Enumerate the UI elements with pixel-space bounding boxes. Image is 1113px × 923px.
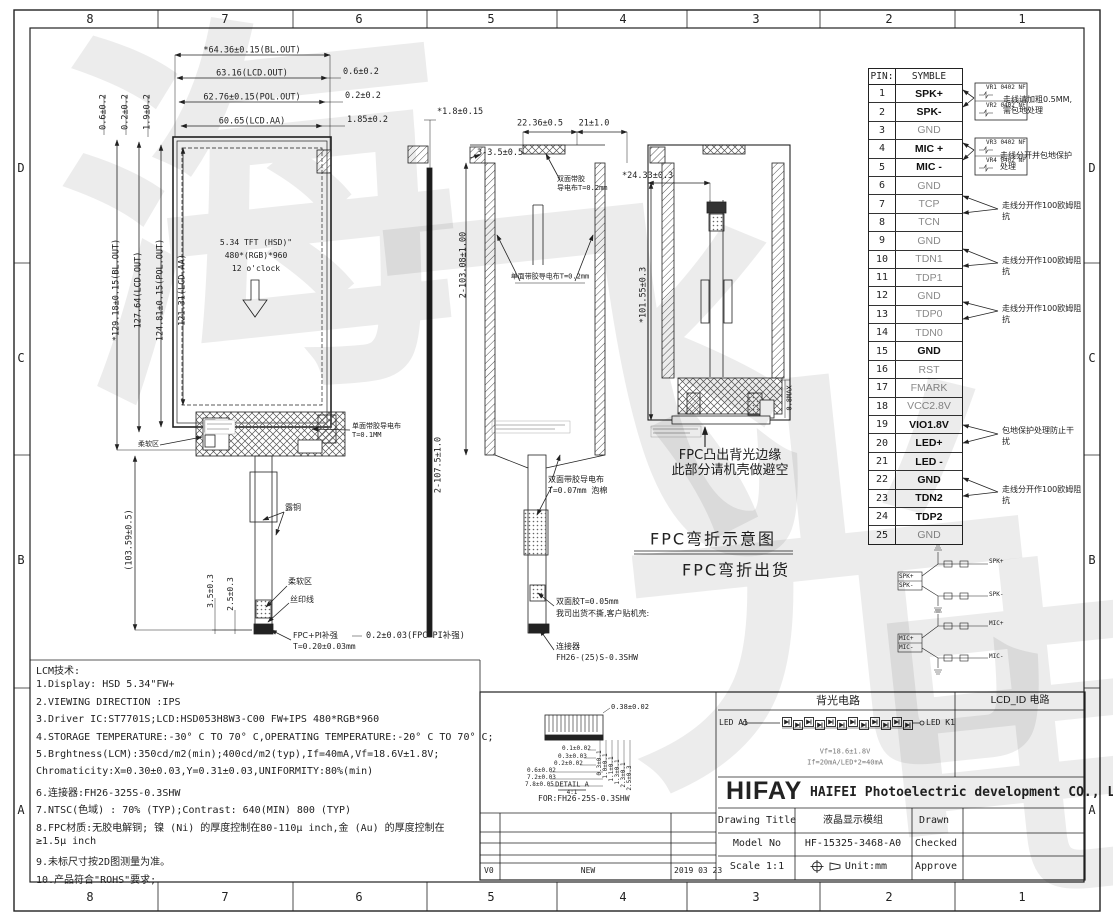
fpc-bend-title: FPC弯折示意图 (650, 532, 776, 549)
engineering-drawing-page: 海 飞 光 电 8877665544332211DDCCBBAA *64.36±… (0, 0, 1113, 923)
pin-symbol: TDN0 (896, 327, 962, 339)
soft-zone-label: 柔软区 (288, 578, 312, 586)
pin-table: PIN: SYMBLE 1SPK+2SPK-3GND4MIC +5MIC -6G… (868, 68, 963, 545)
backlight-if: If=20mA/LED*2=40mA (807, 759, 883, 766)
grid-col-bottom: 5 (487, 890, 494, 904)
pin-symbol: MIC - (896, 161, 962, 173)
silkscreen-label: 丝印线 (290, 596, 314, 604)
detail-rdim-6: 2.5±0.3 (627, 765, 633, 790)
led-ground-note1: 包地保护处理防止干 (1002, 427, 1074, 435)
tape-top-label2: 导电布T=0.2mm (557, 185, 608, 192)
dim-section-h1: 2-103.08±1.00 (460, 232, 469, 299)
grid-row-left: C (17, 351, 24, 365)
pin-number: 22 (869, 471, 896, 488)
pin-row: 24TDP2 (869, 508, 962, 526)
dim-lcd-out-h: 127.64(LCD.OUT) (135, 252, 144, 329)
fpc-bend-subtitle: FPC弯折出货 (682, 563, 790, 580)
dim-rear-w: *24.33±0.3 (622, 172, 673, 181)
pin-symbol: TDN2 (896, 492, 962, 504)
impedance-note4b: 抗 (1002, 497, 1010, 505)
pin-symbol: LED - (896, 456, 962, 468)
dim-bl-out-w: *64.36±0.15(BL.OUT) (203, 47, 300, 56)
pin-row: 12GND (869, 287, 962, 305)
connector-label1: 连接器 (556, 643, 580, 651)
note-line: ≥1.5μ inch (36, 836, 480, 853)
note-line: 6.连接器:FH26-325S-0.3SHW (36, 784, 480, 801)
model-no-label: Model No (733, 839, 781, 850)
company-logo: HIFAY (726, 778, 802, 804)
detail-dim-1: 0.1±0.02 (562, 746, 591, 752)
dim-right-3: 1.85±0.2 (347, 116, 388, 125)
detail-for-text: FOR:FH26-25S-0.3SHW (538, 795, 630, 803)
lcd-id-circuit-title: LCD_ID 电路 (990, 696, 1049, 707)
tape-mid-label: 单面带胶导电布T=0.2mm (511, 273, 590, 280)
pin-number: 4 (869, 140, 896, 157)
detail-dim-6: 7.8±0.05 (525, 782, 554, 788)
pin-symbol: TDN1 (896, 253, 962, 265)
grid-col-top: 4 (619, 12, 626, 26)
note-line: 4.STORAGE TEMPERATURE:-30° C TO 70° C,OP… (36, 732, 480, 749)
stiffener-label: FPC+PI补强 (293, 632, 338, 640)
detail-name: DETAIL A (555, 781, 589, 788)
pin-number: 15 (869, 342, 896, 359)
note-line: 9.未标尺寸按2D图测量为准。 (36, 853, 480, 870)
drawing-title-value: 液晶显示模组 (823, 816, 883, 827)
pin-number: 5 (869, 159, 896, 176)
pin-number: 6 (869, 177, 896, 194)
impedance-note1b: 抗 (1002, 213, 1010, 221)
pin-row: 19VIO1.8V (869, 416, 962, 434)
pin-table-header: PIN: SYMBLE (869, 69, 962, 85)
grid-col-bottom: 4 (619, 890, 626, 904)
note-line: 5.Brghtness(LCM):350cd/m2(min);400cd/m2(… (36, 749, 480, 766)
note-line: 1.Display: HSD 5.34"FW+ (36, 679, 480, 696)
pin-number: 17 (869, 379, 896, 396)
pin-number: 19 (869, 416, 896, 433)
sch-mic-plus: MIC+ (899, 636, 913, 642)
pin-symbol: TDP1 (896, 272, 962, 284)
pin-number: 21 (869, 453, 896, 470)
pin-symbol: TCP (896, 198, 962, 210)
tape-top-label1: 双面带胶 (557, 176, 585, 183)
vr1-label: VR1 0402 NF (986, 85, 1026, 91)
sch-spk-plus: SPK+ (899, 574, 913, 580)
projection-symbol-icon (810, 859, 844, 878)
pin-symbol: TDP2 (896, 511, 962, 523)
grid-row-right: A (1088, 803, 1095, 817)
mic-routing-note1: 走线分开并包地保护 (1000, 152, 1072, 160)
pin-number: 16 (869, 361, 896, 378)
pin-symbol: TDP0 (896, 308, 962, 320)
note-line: 3.Driver IC:ST7701S;LCD:HSD053H8W3-C00 F… (36, 714, 480, 731)
pin-row: 25GND (869, 526, 962, 543)
grid-col-bottom: 3 (752, 890, 759, 904)
scale-label: Scale 1:1 (730, 862, 784, 873)
dim-fpc-length: (103.59±0.5) (126, 509, 135, 570)
conductive-cloth-thickness: T=0.1MM (352, 432, 382, 439)
pin-number: 18 (869, 398, 896, 415)
model-no-value: HF-15325-3468-A0 (805, 839, 901, 850)
pin-row: 6GND (869, 177, 962, 195)
led-chain (782, 716, 917, 736)
backlight-circuit-title: 背光电路 (816, 695, 860, 707)
dim-topleft-1: 0.6±0.2 (100, 94, 109, 130)
drawing-title-label: Drawing Title (718, 816, 796, 827)
impedance-note2b: 抗 (1002, 268, 1010, 276)
pin-row: 23TDN2 (869, 490, 962, 508)
note-line: 2.VIEWING DIRECTION :IPS (36, 697, 480, 714)
dim-lcd-aa-h: 121.31(LCD.AA) (179, 254, 188, 326)
grid-col-top: 5 (487, 12, 494, 26)
pin-row: 10TDN1 (869, 251, 962, 269)
dim-pol-out-w: 62.76±0.15(POL.OUT) (203, 94, 300, 103)
pin-symbol: GND (896, 529, 962, 541)
dim-lcd-out-w: 63.16(LCD.OUT) (216, 70, 288, 79)
tape-label1: 双面胶T=0.05mm (556, 598, 619, 606)
pin-row: 3GND (869, 122, 962, 140)
grid-col-top: 6 (355, 12, 362, 26)
dim-lcd-aa-w: 60.65(LCD.AA) (219, 118, 286, 127)
lcm-tech-notes: LCM技术:1.Display: HSD 5.34"FW+2.VIEWING D… (36, 662, 480, 888)
pin-symbol: RST (896, 364, 962, 376)
impedance-note1: 走线分开作100欧姆阻 (1002, 202, 1081, 210)
note-line: 7.NTSC(色域) : 70% (TYP);Contrast: 640(MIN… (36, 801, 480, 818)
pin-number: 3 (869, 122, 896, 139)
approve-label: Approve (915, 862, 957, 873)
pin-number: 7 (869, 195, 896, 212)
pin-row: 4MIC + (869, 140, 962, 158)
pin-number: 24 (869, 508, 896, 525)
sch-spk-out-minus: SPK- (989, 592, 1003, 598)
drawn-label: Drawn (919, 816, 949, 827)
pin-symbol: SPK- (896, 106, 962, 118)
sch-mic-minus: MIC- (899, 645, 913, 651)
grid-col-bottom: 7 (221, 890, 228, 904)
pin-symbol: FMARK (896, 382, 962, 394)
pin-symbol: GND (896, 290, 962, 302)
pin-symbol: GND (896, 474, 962, 486)
pin-row: 7TCP (869, 195, 962, 213)
pin-symbol: LED+ (896, 437, 962, 449)
pin-symbol: MIC + (896, 143, 962, 155)
pin-number: 20 (869, 434, 896, 451)
dim-section-h2: 2-107.5±1.0 (435, 437, 444, 493)
stiffener-thickness: T=0.20±0.03mm (293, 643, 356, 651)
detail-dim-3: 0.2±0.02 (554, 761, 583, 767)
revision-description: NEW (581, 867, 595, 875)
pin-col-header: PIN: (869, 69, 896, 84)
grid-col-top: 8 (86, 12, 93, 26)
grid-col-bottom: 8 (86, 890, 93, 904)
dim-section-top1: 22.36±0.5 (517, 120, 563, 129)
dim-right-2: 0.2±0.2 (345, 92, 381, 101)
dim-fpc-stiffener: 0.2±0.03(FPC+PI补强) (366, 632, 465, 641)
dim-tail-2: 2.5±0.3 (227, 577, 235, 611)
backlight-vf: Vf=18.6±1.8V (820, 748, 871, 755)
company-name: HAIFEI Photoelectric development CO., LT… (810, 786, 1113, 800)
led-ground-note2: 扰 (1002, 438, 1010, 446)
pin-number: 11 (869, 269, 896, 286)
dim-rear-h: *101.55±0.3 (640, 267, 649, 323)
pin-row: 8TCN (869, 214, 962, 232)
mic-routing-note2: 处理 (1000, 163, 1016, 171)
revision-date: 2019 03 23 (674, 867, 722, 875)
pin-number: 14 (869, 324, 896, 341)
pin-symbol: SPK+ (896, 88, 962, 100)
pin-row: 16RST (869, 361, 962, 379)
dim-rear-max: 0.8MAX (786, 385, 793, 410)
impedance-note3b: 抗 (1002, 316, 1010, 324)
dim-right-1: 0.6±0.2 (343, 68, 379, 77)
pin-number: 12 (869, 287, 896, 304)
pin-row: 17FMARK (869, 379, 962, 397)
pin-row: 2SPK- (869, 103, 962, 121)
pin-number: 2 (869, 103, 896, 120)
pin-row: 11TDP1 (869, 269, 962, 287)
impedance-note4: 走线分开作100欧姆阻 (1002, 486, 1081, 494)
sch-spk-minus: SPK- (899, 583, 913, 589)
fpc-clearance-note1: FPC凸出背光边缘 (679, 449, 781, 463)
grid-col-top: 3 (752, 12, 759, 26)
pin-row: 1SPK+ (869, 85, 962, 103)
screen-spec-line2: 480*(RGB)*960 (225, 252, 288, 260)
pin-number: 10 (869, 251, 896, 268)
pin-symbol: GND (896, 124, 962, 136)
pin-symbol: TCN (896, 216, 962, 228)
grid-row-left: D (17, 161, 24, 175)
pin-row: 20LED+ (869, 434, 962, 452)
pin-number: 9 (869, 232, 896, 249)
pin-number: 23 (869, 490, 896, 507)
led-anode-label: LED A1 (719, 719, 748, 727)
pin-number: 25 (869, 526, 896, 543)
grid-col-bottom: 1 (1018, 890, 1025, 904)
foam-label1: 双面带胶导电布 (548, 476, 604, 484)
pin-row: 9GND (869, 232, 962, 250)
spk-routing-note1: 走线请加粗0.5MM, (1003, 96, 1072, 104)
dim-pol-out-h: 124.81±0.15(POL.OUT) (157, 239, 166, 341)
conductive-cloth-label: 单面带胶导电布 (352, 423, 401, 430)
dim-section-top2: 21±1.0 (579, 120, 610, 129)
impedance-note2: 走线分开作100欧姆阻 (1002, 257, 1081, 265)
dim-thickness: *1.8±0.15 (437, 108, 483, 117)
led-cathode-label: LED K1 (926, 719, 955, 727)
grid-col-bottom: 2 (885, 890, 892, 904)
soft-zone-label-top: 柔软区 (138, 441, 159, 448)
pin-row: 21LED - (869, 453, 962, 471)
spk-routing-note2: 需包地处理 (1003, 107, 1043, 115)
vr3-label: VR3 0402 NF (986, 140, 1026, 146)
dim-tail-1: 3.5±0.3 (207, 574, 215, 608)
sch-mic-out-plus: MIC+ (989, 621, 1003, 627)
sch-mic-out-minus: MIC- (989, 654, 1003, 660)
note-line: 10.产品符合"ROHS"要求; (36, 871, 480, 888)
unit-value: Unit:mm (845, 862, 887, 873)
revision-version: V0 (484, 867, 494, 875)
sch-spk-out-plus: SPK+ (989, 559, 1003, 565)
pin-symbol: VIO1.8V (896, 419, 962, 431)
connector-label2: FH26-(25)S-0.3SHW (556, 654, 638, 662)
pin-symbol: VCC2.8V (896, 400, 962, 412)
grid-row-right: B (1088, 553, 1095, 567)
note-line: 8.FPC材质:无胶电解铜; 镍 (Ni) 的厚度控制在80-110μ inch… (36, 819, 480, 836)
pin-row: 18VCC2.8V (869, 398, 962, 416)
pin-symbol: GND (896, 235, 962, 247)
grid-col-top: 1 (1018, 12, 1025, 26)
pin-symbol: GND (896, 345, 962, 357)
grid-row-right: C (1088, 351, 1095, 365)
pin-number: 13 (869, 306, 896, 323)
grid-row-right: D (1088, 161, 1095, 175)
grid-col-top: 7 (221, 12, 228, 26)
tape-label2: 我司出货不撕,客户贴机壳: (556, 610, 649, 618)
pin-row: 14TDN0 (869, 324, 962, 342)
pin-row: 13TDP0 (869, 306, 962, 324)
impedance-note3: 走线分开作100欧姆阻 (1002, 305, 1081, 313)
dim-topleft-3: 1.9±0.2 (144, 94, 153, 130)
detail-dim-top: 0.38±0.02 (611, 704, 649, 711)
pin-row: 15GND (869, 342, 962, 360)
note-line: LCM技术: (36, 662, 480, 679)
symbol-col-header: SYMBLE (896, 71, 962, 82)
pin-row: 22GND (869, 471, 962, 489)
pin-row: 5MIC - (869, 159, 962, 177)
checked-label: Checked (915, 839, 957, 850)
screen-spec-line1: 5.34 TFT (HSD)" (220, 239, 292, 247)
screen-spec-line3: 12 o'clock (232, 265, 280, 273)
pin-number: 8 (869, 214, 896, 231)
fpc-clearance-note2: 此部分请机壳做避空 (671, 464, 788, 478)
dim-section-side: 3-3.5±0.5 (477, 149, 523, 158)
grid-col-top: 2 (885, 12, 892, 26)
grid-row-left: B (17, 553, 24, 567)
grid-row-left: A (17, 803, 24, 817)
grid-col-bottom: 6 (355, 890, 362, 904)
foam-label2: T=0.07mm 泡棉 (548, 487, 607, 495)
dim-bl-out-h: *129.18±0.15(BL.OUT) (113, 239, 122, 341)
pin-symbol: GND (896, 180, 962, 192)
note-line: Chromaticity:X=0.30±0.03,Y=0.31±0.03,UNI… (36, 766, 480, 783)
pin-number: 1 (869, 85, 896, 102)
dim-topleft-2: 0.2±0.2 (122, 94, 131, 130)
exposed-copper-label: 露铜 (285, 504, 301, 512)
